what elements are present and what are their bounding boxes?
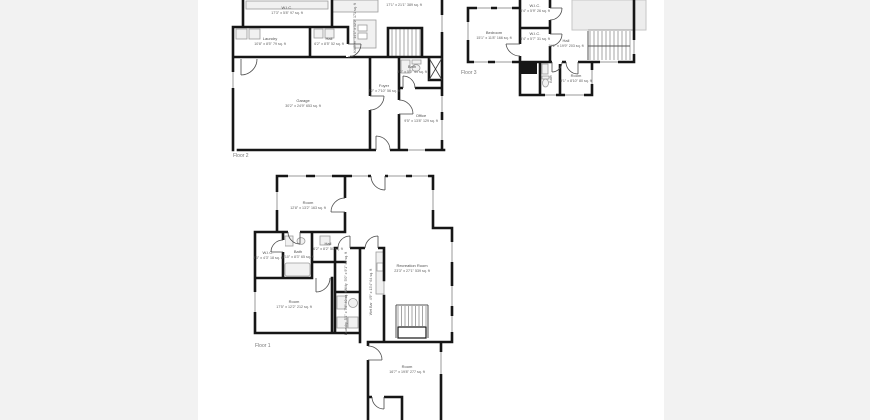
room-dims: 23'3" x 27'1" 539 sq. ft — [394, 269, 430, 273]
room-dims: 17'1" x 21'1" 389 sq. ft — [386, 3, 422, 7]
room-dims: 7'2" x 7'10" 56 sq. ft — [368, 89, 400, 93]
room-dims: 9'1" x 8'10" 80 sq. ft — [560, 79, 592, 83]
room-dims: 17'3" x 5'8" 97 sq. ft — [271, 11, 303, 15]
room-dims: 16'7" x 19'8" 277 sq. ft — [389, 370, 425, 374]
washer — [236, 29, 247, 39]
utility-label: Utility5'0" x 9'1" 46 sq. ft — [344, 252, 348, 292]
wetbar-label: Wet Bar4'9" x 13'4" 64 sq. ft — [369, 269, 373, 315]
room-dims: 15'1" x 11'8" 166 sq. ft — [476, 36, 511, 40]
room-name: Foyer — [379, 83, 390, 88]
sink — [377, 263, 383, 271]
room-dims: 5'4" x 5'9" 26 sq. ft — [520, 9, 550, 13]
bathtub — [285, 263, 310, 276]
laundry-label: Laundry5'1" x 7'9" 40 sq. ft — [344, 291, 348, 336]
room-dims: 9'5" x 13'8" 129 sq. ft — [404, 119, 438, 123]
room-dims: 4'3" x 4'3" 18 sq. ft — [253, 256, 283, 260]
floor3-title: Floor 3 — [461, 70, 477, 76]
room-name: W.I.C. — [530, 3, 541, 8]
room-name: W.I.C. — [263, 250, 274, 255]
room-name: W.I.C. — [282, 5, 293, 10]
bath-label: Bath — [549, 75, 553, 82]
room-name: Laundry — [263, 36, 277, 41]
room-name: Room — [571, 73, 582, 78]
floorplan-sheet: W.I.C. 17'3" x 5'8" 97 sq. ft Laundry 10… — [0, 0, 870, 420]
room-name: Room — [402, 364, 413, 369]
toilet — [543, 79, 549, 87]
room-name: Garage — [296, 98, 310, 103]
room-name: Hall — [325, 241, 332, 246]
room-dims: 10'8" x 8'5" 79 sq. ft — [254, 42, 286, 46]
cabinet — [314, 29, 323, 38]
toilet-tank — [542, 76, 549, 79]
room-dims: 17'5" x 12'2" 212 sq. ft — [276, 305, 312, 309]
room-dims: 8'2" x 5'0" 41 sq. ft — [397, 70, 427, 74]
room-name: Recreation Room — [396, 263, 428, 268]
room-dims: 5'4" x 5'7" 31 sq. ft — [520, 37, 550, 41]
sink — [358, 25, 367, 31]
room-dims: 6'2" x 8'2" 50 sq. ft — [313, 247, 343, 251]
dryer — [249, 29, 260, 39]
room-dims: 11'2" x 19'9" 203 sq. ft — [548, 44, 583, 48]
room-dims: 6'2" x 8'5" 52 sq. ft — [314, 42, 344, 46]
sink — [358, 33, 367, 39]
floor1-title: Floor 1 — [255, 343, 271, 349]
dryer — [348, 317, 358, 328]
water-heater — [349, 299, 358, 308]
room-name: Room — [289, 299, 300, 304]
room-name: W.I.C. — [530, 31, 541, 36]
bath-vanity — [542, 64, 548, 74]
toilet — [297, 238, 305, 245]
room-name: Room — [303, 200, 314, 205]
room-name: Bedroom — [486, 30, 503, 35]
floor2-title: Floor 2 — [233, 153, 249, 159]
kitchen-label: Kitchen14'1" x 12'2" 171 sq. ft — [353, 3, 357, 53]
room-dims: 30'2" x 24'9" 653 sq. ft — [285, 104, 321, 108]
room-name: Hall — [563, 38, 570, 43]
chimney-block — [521, 63, 537, 74]
room-dims: 7'10" x 8'3" 65 sq. ft — [282, 255, 314, 259]
room-name: Bath — [408, 64, 416, 69]
room-name: Bath — [294, 249, 302, 254]
room-name: Office — [416, 113, 427, 118]
room-dims: 12'8" x 13'2" 163 sq. ft — [290, 206, 326, 210]
room-name: Hall — [326, 36, 333, 41]
